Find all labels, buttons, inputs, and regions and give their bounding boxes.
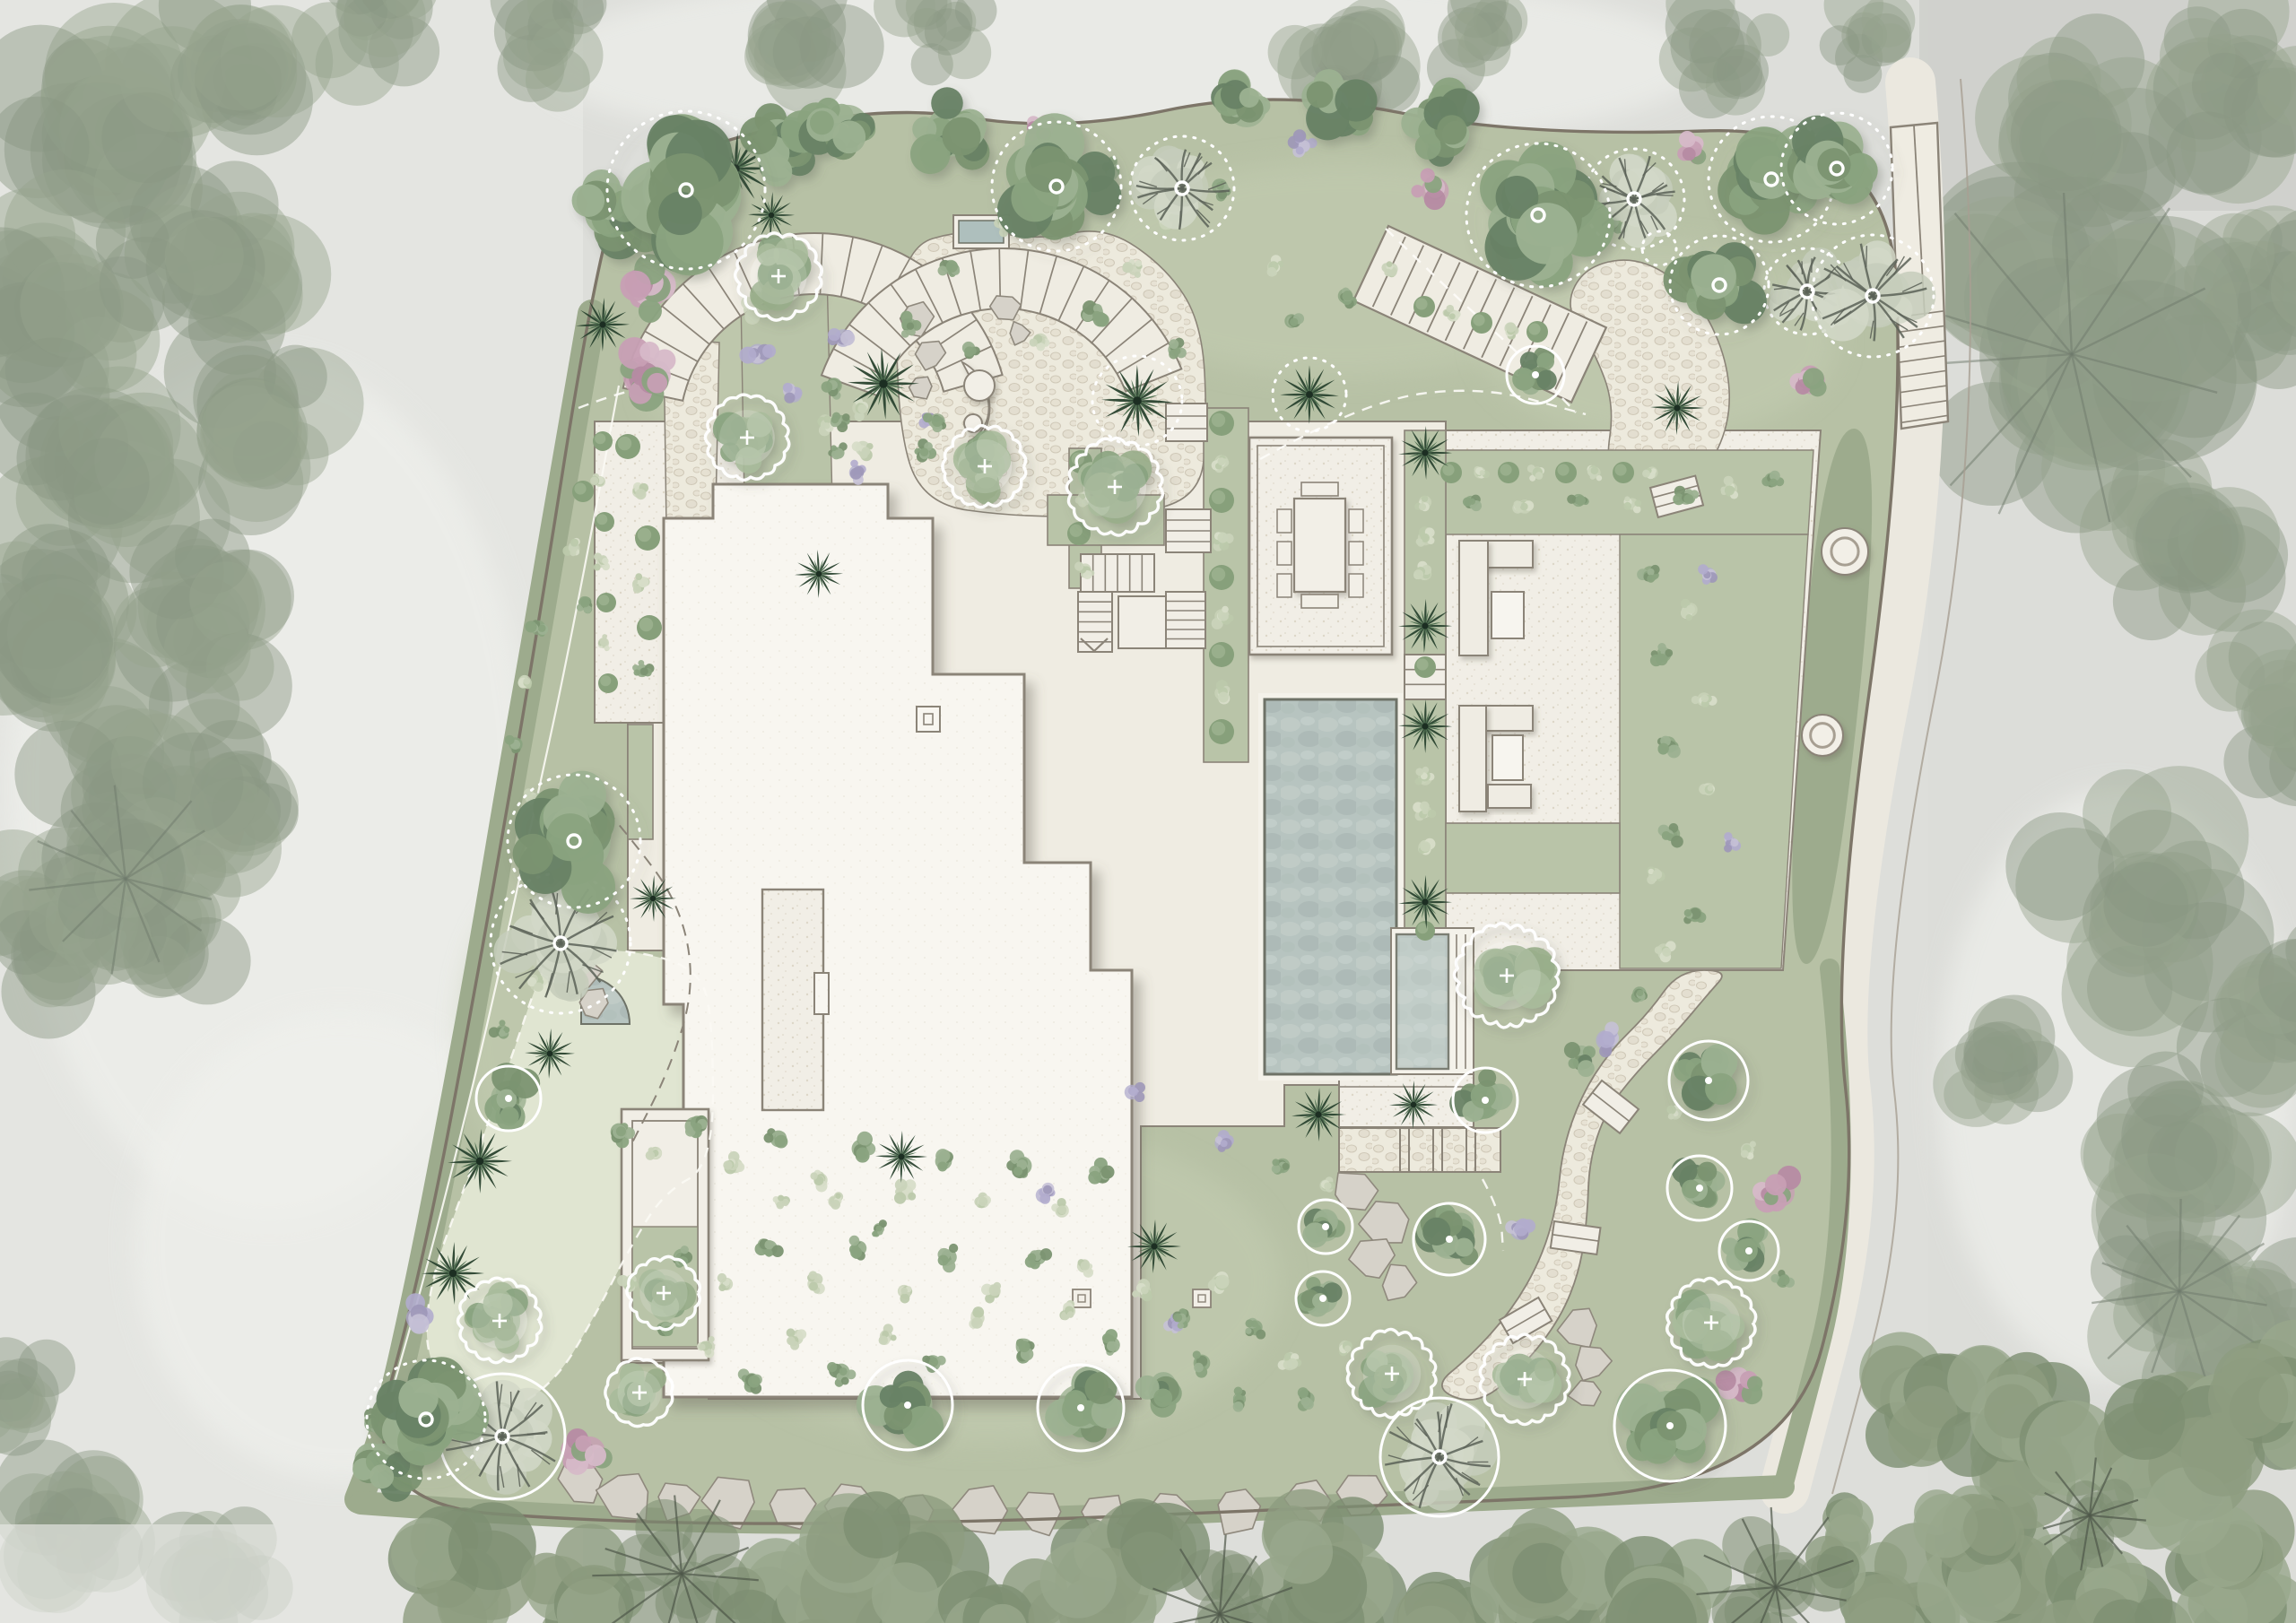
round-planter [1802, 715, 1843, 756]
shrub [1415, 921, 1435, 941]
planter-pot [964, 370, 995, 401]
dining-chair [1277, 509, 1291, 533]
round-planter [1822, 528, 1868, 575]
shrub [615, 434, 640, 459]
lounge-mid-bed [1446, 823, 1620, 893]
west-bed [628, 725, 653, 839]
coffee-table [1492, 735, 1523, 780]
shrub [1414, 656, 1436, 678]
dining-chair [1277, 542, 1291, 565]
shrub [1440, 462, 1462, 483]
dining-table [1294, 499, 1345, 592]
garden-light [1073, 1289, 1091, 1307]
context-tree [2145, 0, 2296, 204]
shrub [635, 525, 660, 551]
lounge-sofa [1459, 541, 1488, 655]
corner-steps [1166, 404, 1207, 441]
shrub [894, 1179, 916, 1204]
shrub [595, 512, 614, 532]
lavender-shrub [828, 328, 856, 347]
shrub [1168, 338, 1187, 360]
dining-chair [1277, 574, 1291, 597]
site-plan-svg [0, 0, 2296, 1623]
garden-light [1193, 1289, 1211, 1307]
shrub [637, 615, 662, 640]
path-steps [1551, 1221, 1601, 1254]
shrub [1209, 411, 1234, 436]
dining-chair [1349, 574, 1363, 597]
shrub [1498, 462, 1519, 483]
dining-chair [1349, 542, 1363, 565]
shrub [1209, 565, 1234, 590]
lounge-sofa [1459, 706, 1486, 811]
shrub [1209, 488, 1234, 513]
shrub [598, 673, 618, 693]
lounge-top-bed [1446, 450, 1813, 534]
shrub [1209, 642, 1234, 667]
shrub [593, 431, 613, 451]
context-tree [1659, 0, 1789, 118]
shrub [1471, 312, 1492, 334]
shrub [1555, 462, 1577, 483]
swimming-pool [1265, 699, 1396, 1074]
coffee-table [1492, 592, 1524, 638]
shrub [1526, 321, 1548, 343]
shrub [1209, 719, 1234, 744]
masterplan-figure [0, 0, 2296, 1623]
shrub [572, 481, 594, 502]
dining-chair [1349, 509, 1363, 533]
lounge-right-bed [1620, 534, 1808, 968]
dining-bench [1301, 595, 1338, 608]
shrub [1613, 462, 1634, 483]
shrub [1413, 296, 1435, 317]
shrub [596, 593, 616, 612]
lounge-sofa [1488, 785, 1531, 808]
dining-bench [1301, 482, 1338, 496]
